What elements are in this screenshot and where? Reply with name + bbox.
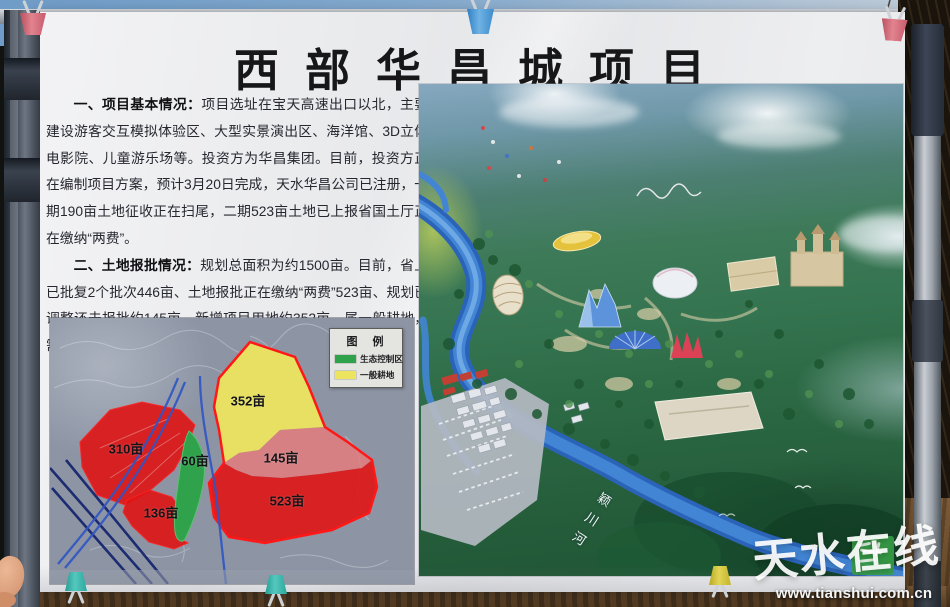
clip-body (467, 9, 494, 34)
section-heading: 二、土地报批情况： (74, 258, 201, 273)
binder-clip-teal-bottom-1 (65, 572, 87, 591)
binder-clip-blue-center (467, 9, 494, 34)
stand-pole-left (4, 10, 40, 607)
binder-clip-teal-bottom-2 (265, 575, 287, 594)
pole-collar (912, 300, 943, 362)
binder-clip-pink-right (880, 18, 907, 42)
rendering-graphics (419, 84, 903, 576)
parcel-label-136: 136亩 (144, 503, 179, 522)
pole-joint (4, 158, 40, 202)
clip-body (265, 575, 287, 594)
map-legend-title: 图 例 (335, 333, 397, 349)
parcel-label-352: 352亩 (231, 391, 266, 410)
pole-cap (911, 24, 944, 136)
legend-label: 一般耕地 (360, 369, 394, 381)
legend-swatch-green (335, 355, 356, 363)
map-legend: 图 例 生态控制区 一般耕地 (329, 328, 403, 388)
theme-park-aerial-rendering: 颖川河 (419, 84, 903, 576)
clip-body (709, 566, 731, 585)
section-body: 项目选址在宝天高速出口以北，主要建设游客交互模拟体验区、大型实景演出区、海洋馆、… (46, 97, 428, 246)
legend-swatch-yellow (335, 371, 356, 379)
clip-body (20, 13, 46, 35)
binder-clip-pink-left (20, 13, 46, 35)
legend-item-farmland: 一般耕地 (335, 369, 397, 381)
section-heading: 一、项目基本情况： (74, 97, 202, 112)
parcel-label-60: 60亩 (181, 451, 208, 470)
watermark-url: www.tianshui.com.cn (760, 585, 948, 602)
photo-of-notice-board: 西部华昌城项目 一、项目基本情况：项目选址在宝天高速出口以北，主要建设游客交互模… (0, 0, 950, 607)
project-notice-poster: 西部华昌城项目 一、项目基本情况：项目选址在宝天高速出口以北，主要建设游客交互模… (34, 12, 905, 592)
section-basic-info: 一、项目基本情况：项目选址在宝天高速出口以北，主要建设游客交互模拟体验区、大型实… (46, 92, 428, 253)
legend-item-eco: 生态控制区 (335, 353, 397, 365)
finger (0, 592, 16, 607)
binder-clip-yellow-bottom (709, 566, 731, 585)
land-parcel-map: 图 例 生态控制区 一般耕地 352亩 310亩 145亩 523亩 136亩 … (50, 318, 414, 584)
parcel-label-523: 523亩 (270, 491, 305, 510)
parcel-label-310: 310亩 (109, 439, 144, 458)
pole-joint (4, 58, 40, 100)
legend-label: 生态控制区 (360, 353, 403, 365)
clip-body (880, 18, 907, 42)
parcel-label-145: 145亩 (264, 448, 299, 467)
clip-body (65, 572, 87, 591)
